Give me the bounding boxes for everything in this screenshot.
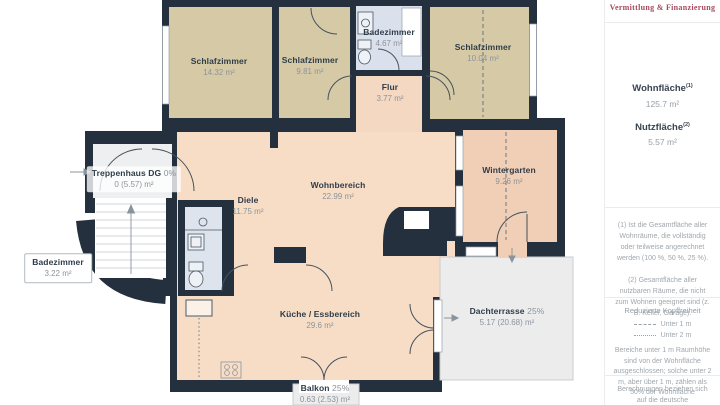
floor-plan: Schlafzimmer 14.32 m² Schlafzimmer 9.81 … [0, 0, 604, 405]
room-schlafzimmer-3-fill [430, 7, 529, 119]
metric-label: Wohnfläche [632, 84, 686, 95]
legend-item-label: Unter 2 m [661, 332, 692, 339]
legend-title: Reduzierte Kopffreiheit [605, 306, 720, 315]
metric-wohnflaeche: Wohnfläche(1) 125.7 m² [632, 83, 692, 108]
dashed-line-icon [634, 324, 656, 325]
legend-item-label: Unter 1 m [661, 321, 692, 328]
legend-item-under-2m: Unter 2 m [605, 332, 720, 339]
metric-value: 5.57 m² [635, 137, 690, 147]
room-schlafzimmer-1-fill [169, 7, 272, 118]
small-bath [178, 200, 234, 296]
wall-stub-diele [270, 132, 278, 148]
info-sidebar: Vermittlung & Finanzierung Wohnfläche(1)… [604, 0, 720, 405]
metric-value: 125.7 m² [632, 99, 692, 109]
footnote-1: (1) Ist die Gesamtfläche aller Wohnräume… [613, 221, 712, 264]
balkon-door-gap [299, 380, 349, 393]
floor-plan-drawing [0, 0, 604, 405]
brand-logo-text: Vermittlung & Finanzierung [610, 3, 716, 12]
metric-label: Nutzfläche [635, 122, 683, 133]
disclaimer-text: Berechnungen beziehen sich auf die deuts… [612, 385, 713, 405]
dachterrasse-area [440, 257, 573, 380]
legend-item-under-1m: Unter 1 m [605, 321, 720, 328]
dotted-line-icon [634, 335, 656, 336]
floorplan-viewer: Schlafzimmer 14.32 m² Schlafzimmer 9.81 … [0, 0, 720, 405]
room-flur-fill [356, 76, 422, 140]
metric-footnote-ref: (1) [686, 83, 693, 89]
skylight [186, 300, 212, 316]
disclaimer-section: Berechnungen beziehen sich auf die deuts… [605, 375, 720, 405]
headroom-legend: Reduzierte Kopffreiheit Unter 1 m Unter … [605, 297, 720, 375]
metric-footnote-ref: (2) [683, 122, 690, 128]
room-kueche-fill [177, 297, 433, 380]
brand-logo: Vermittlung & Finanzierung [605, 0, 720, 22]
wall-stub-kitchen-entry [274, 247, 306, 263]
footnotes-section: (1) Ist die Gesamtfläche aller Wohnräume… [605, 207, 720, 297]
room-wintergarten-fill [463, 130, 557, 242]
room-schlafzimmer-2-fill [279, 7, 350, 118]
metric-nutzflaeche: Nutzfläche(2) 5.57 m² [635, 122, 690, 147]
area-metrics: Wohnfläche(1) 125.7 m² Nutzfläche(2) 5.5… [605, 22, 720, 207]
